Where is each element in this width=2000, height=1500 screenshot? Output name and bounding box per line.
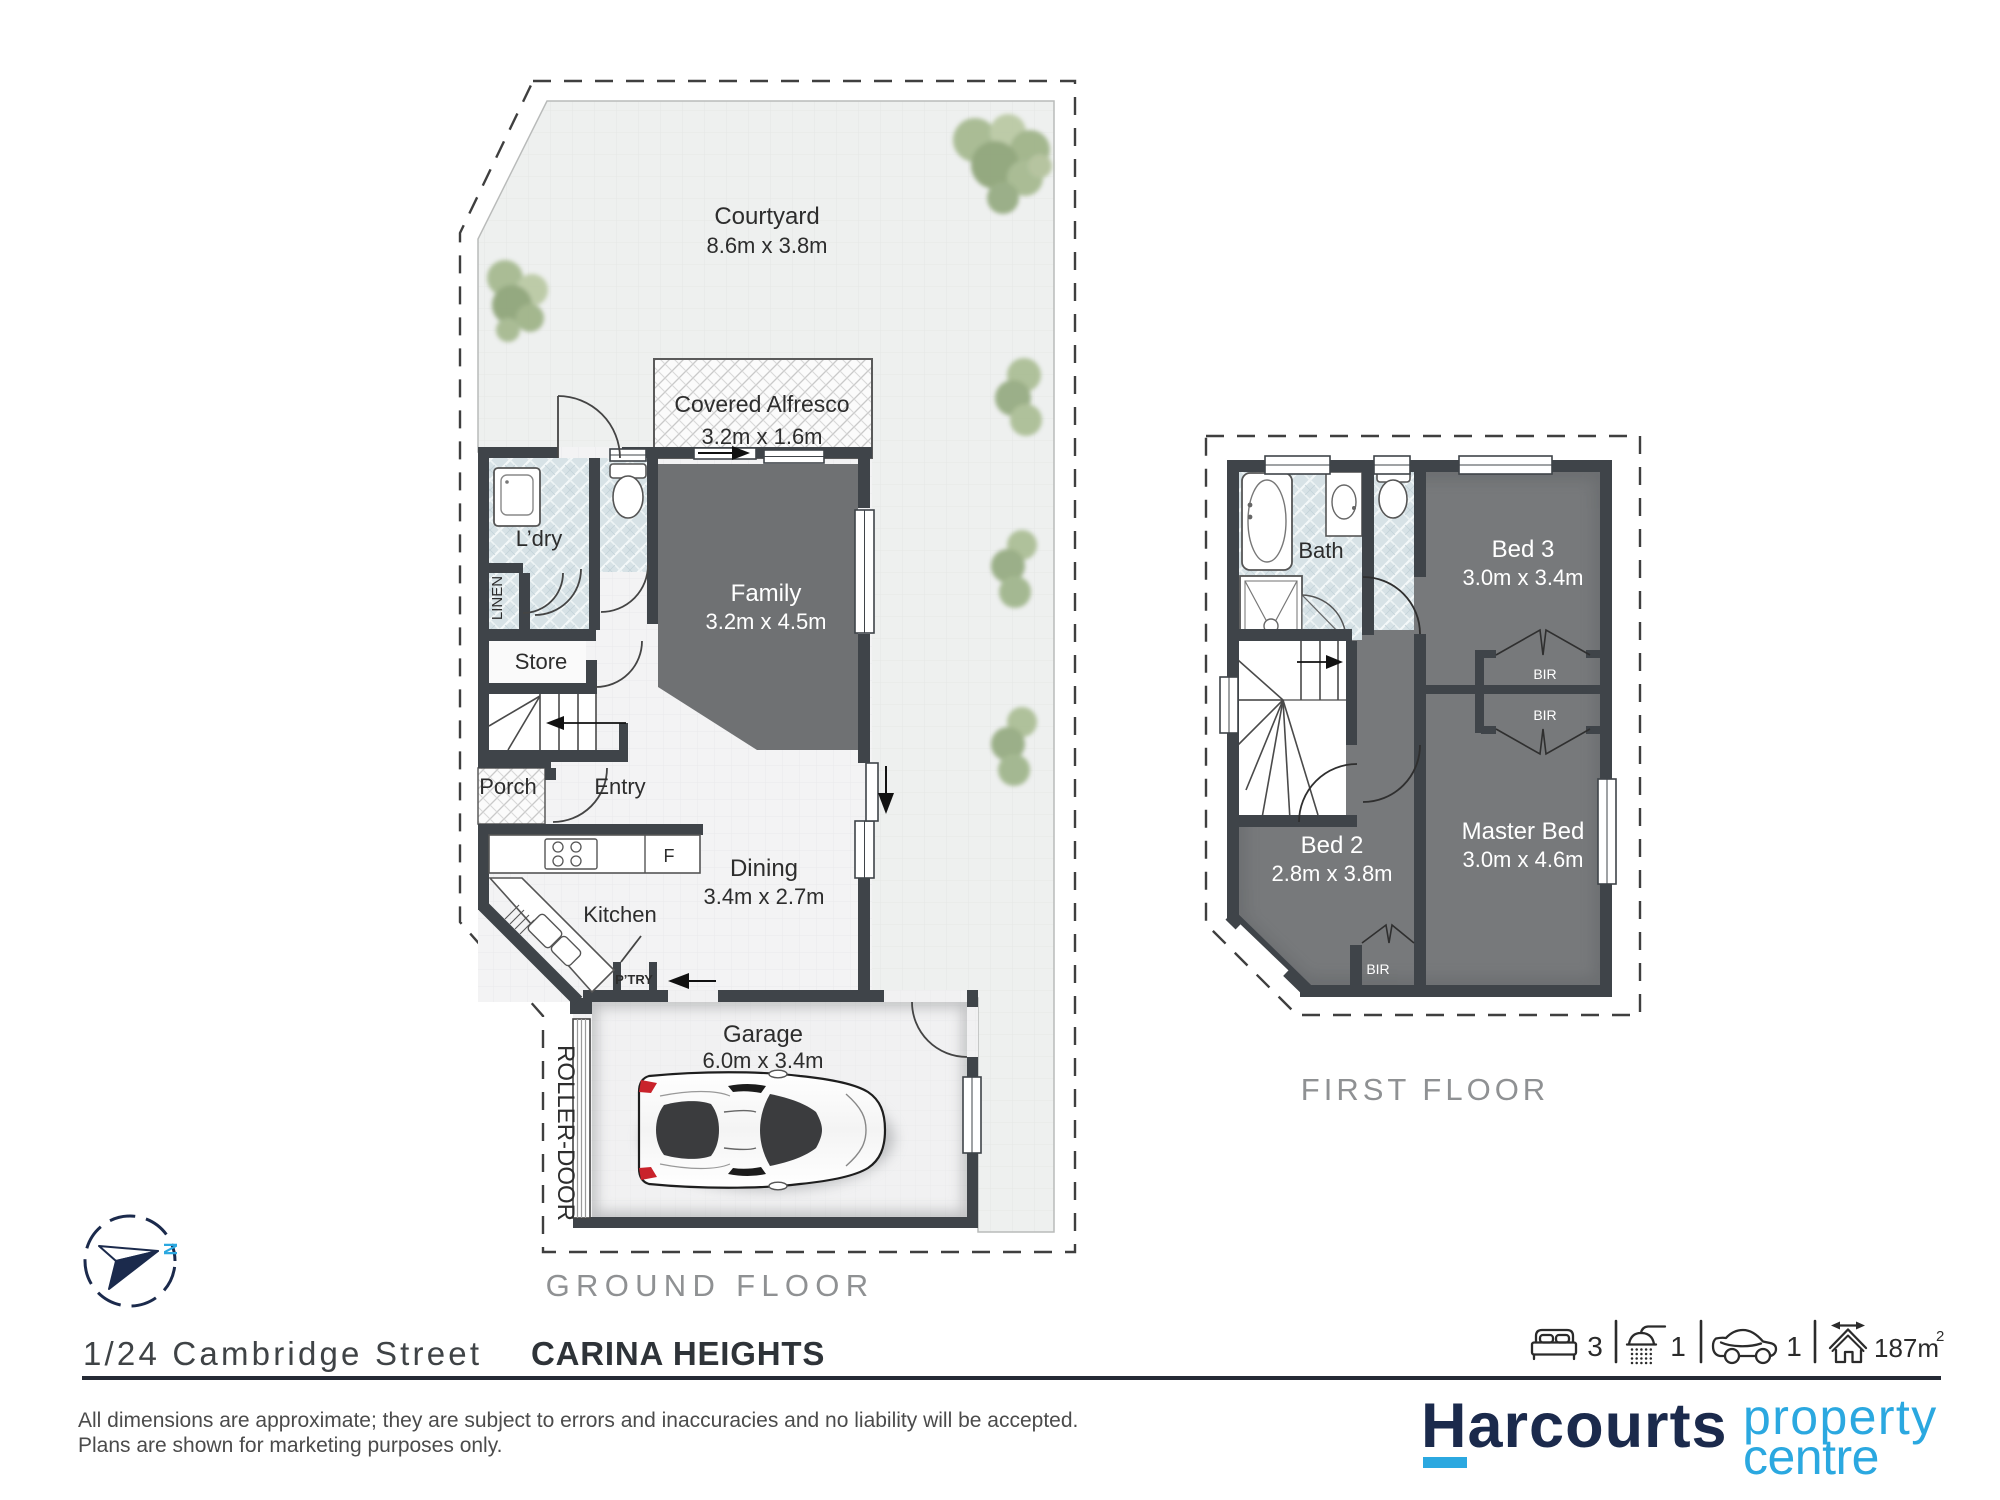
svg-text:Bed 3: Bed 3 xyxy=(1492,536,1555,563)
svg-text:Bed 2: Bed 2 xyxy=(1301,832,1364,859)
svg-text:Master Bed: Master Bed xyxy=(1462,818,1585,845)
svg-text:3.2m x 1.6m: 3.2m x 1.6m xyxy=(701,424,822,449)
svg-text:3.2m x 4.5m: 3.2m x 4.5m xyxy=(705,609,826,634)
svg-text:Bath: Bath xyxy=(1298,538,1343,563)
svg-text:187m: 187m xyxy=(1874,1333,1939,1363)
svg-text:Covered Alfresco: Covered Alfresco xyxy=(674,391,849,417)
svg-text:1: 1 xyxy=(1670,1331,1686,1362)
svg-text:LINEN: LINEN xyxy=(489,576,506,620)
svg-text:BIR: BIR xyxy=(1533,666,1556,682)
svg-text:1: 1 xyxy=(1786,1331,1802,1362)
svg-text:BIR: BIR xyxy=(1533,707,1556,723)
svg-text:Dining: Dining xyxy=(730,855,798,882)
svg-text:GROUND FLOOR: GROUND FLOOR xyxy=(546,1268,875,1303)
svg-text:Entry: Entry xyxy=(594,774,645,799)
svg-text:CARINA HEIGHTS: CARINA HEIGHTS xyxy=(531,1335,825,1372)
svg-text:L’dry: L’dry xyxy=(516,526,562,551)
svg-text:BIR: BIR xyxy=(1366,961,1389,977)
svg-text:6.0m x 3.4m: 6.0m x 3.4m xyxy=(702,1048,823,1073)
svg-text:Plans are shown for marketing: Plans are shown for marketing purposes o… xyxy=(78,1434,503,1457)
svg-text:F: F xyxy=(664,846,675,866)
svg-text:2.8m x 3.8m: 2.8m x 3.8m xyxy=(1271,861,1392,886)
svg-text:3.0m x 3.4m: 3.0m x 3.4m xyxy=(1462,565,1583,590)
svg-text:ROLLER-DOOR: ROLLER-DOOR xyxy=(552,1045,579,1221)
svg-text:All dimensions are approximate: All dimensions are approximate; they are… xyxy=(78,1409,1078,1432)
svg-text:Kitchen: Kitchen xyxy=(583,902,656,927)
svg-text:centre: centre xyxy=(1743,1429,1879,1485)
svg-text:2: 2 xyxy=(1936,1328,1944,1345)
svg-text:1/24 Cambridge Street: 1/24 Cambridge Street xyxy=(83,1335,482,1372)
svg-text:Porch: Porch xyxy=(479,774,536,799)
svg-text:3.4m x 2.7m: 3.4m x 2.7m xyxy=(703,884,824,909)
svg-text:Garage: Garage xyxy=(723,1021,803,1048)
svg-text:8.6m x 3.8m: 8.6m x 3.8m xyxy=(706,233,827,258)
svg-text:FIRST FLOOR: FIRST FLOOR xyxy=(1301,1072,1549,1107)
svg-text:Store: Store xyxy=(515,649,568,674)
svg-text:P’TRY: P’TRY xyxy=(615,972,653,987)
svg-text:Family: Family xyxy=(731,580,802,607)
svg-text:3: 3 xyxy=(1587,1331,1603,1362)
svg-text:3.0m x 4.6m: 3.0m x 4.6m xyxy=(1462,847,1583,872)
svg-text:Harcourts: Harcourts xyxy=(1421,1391,1728,1461)
svg-text:N: N xyxy=(160,1243,180,1256)
svg-text:Courtyard: Courtyard xyxy=(714,203,819,230)
